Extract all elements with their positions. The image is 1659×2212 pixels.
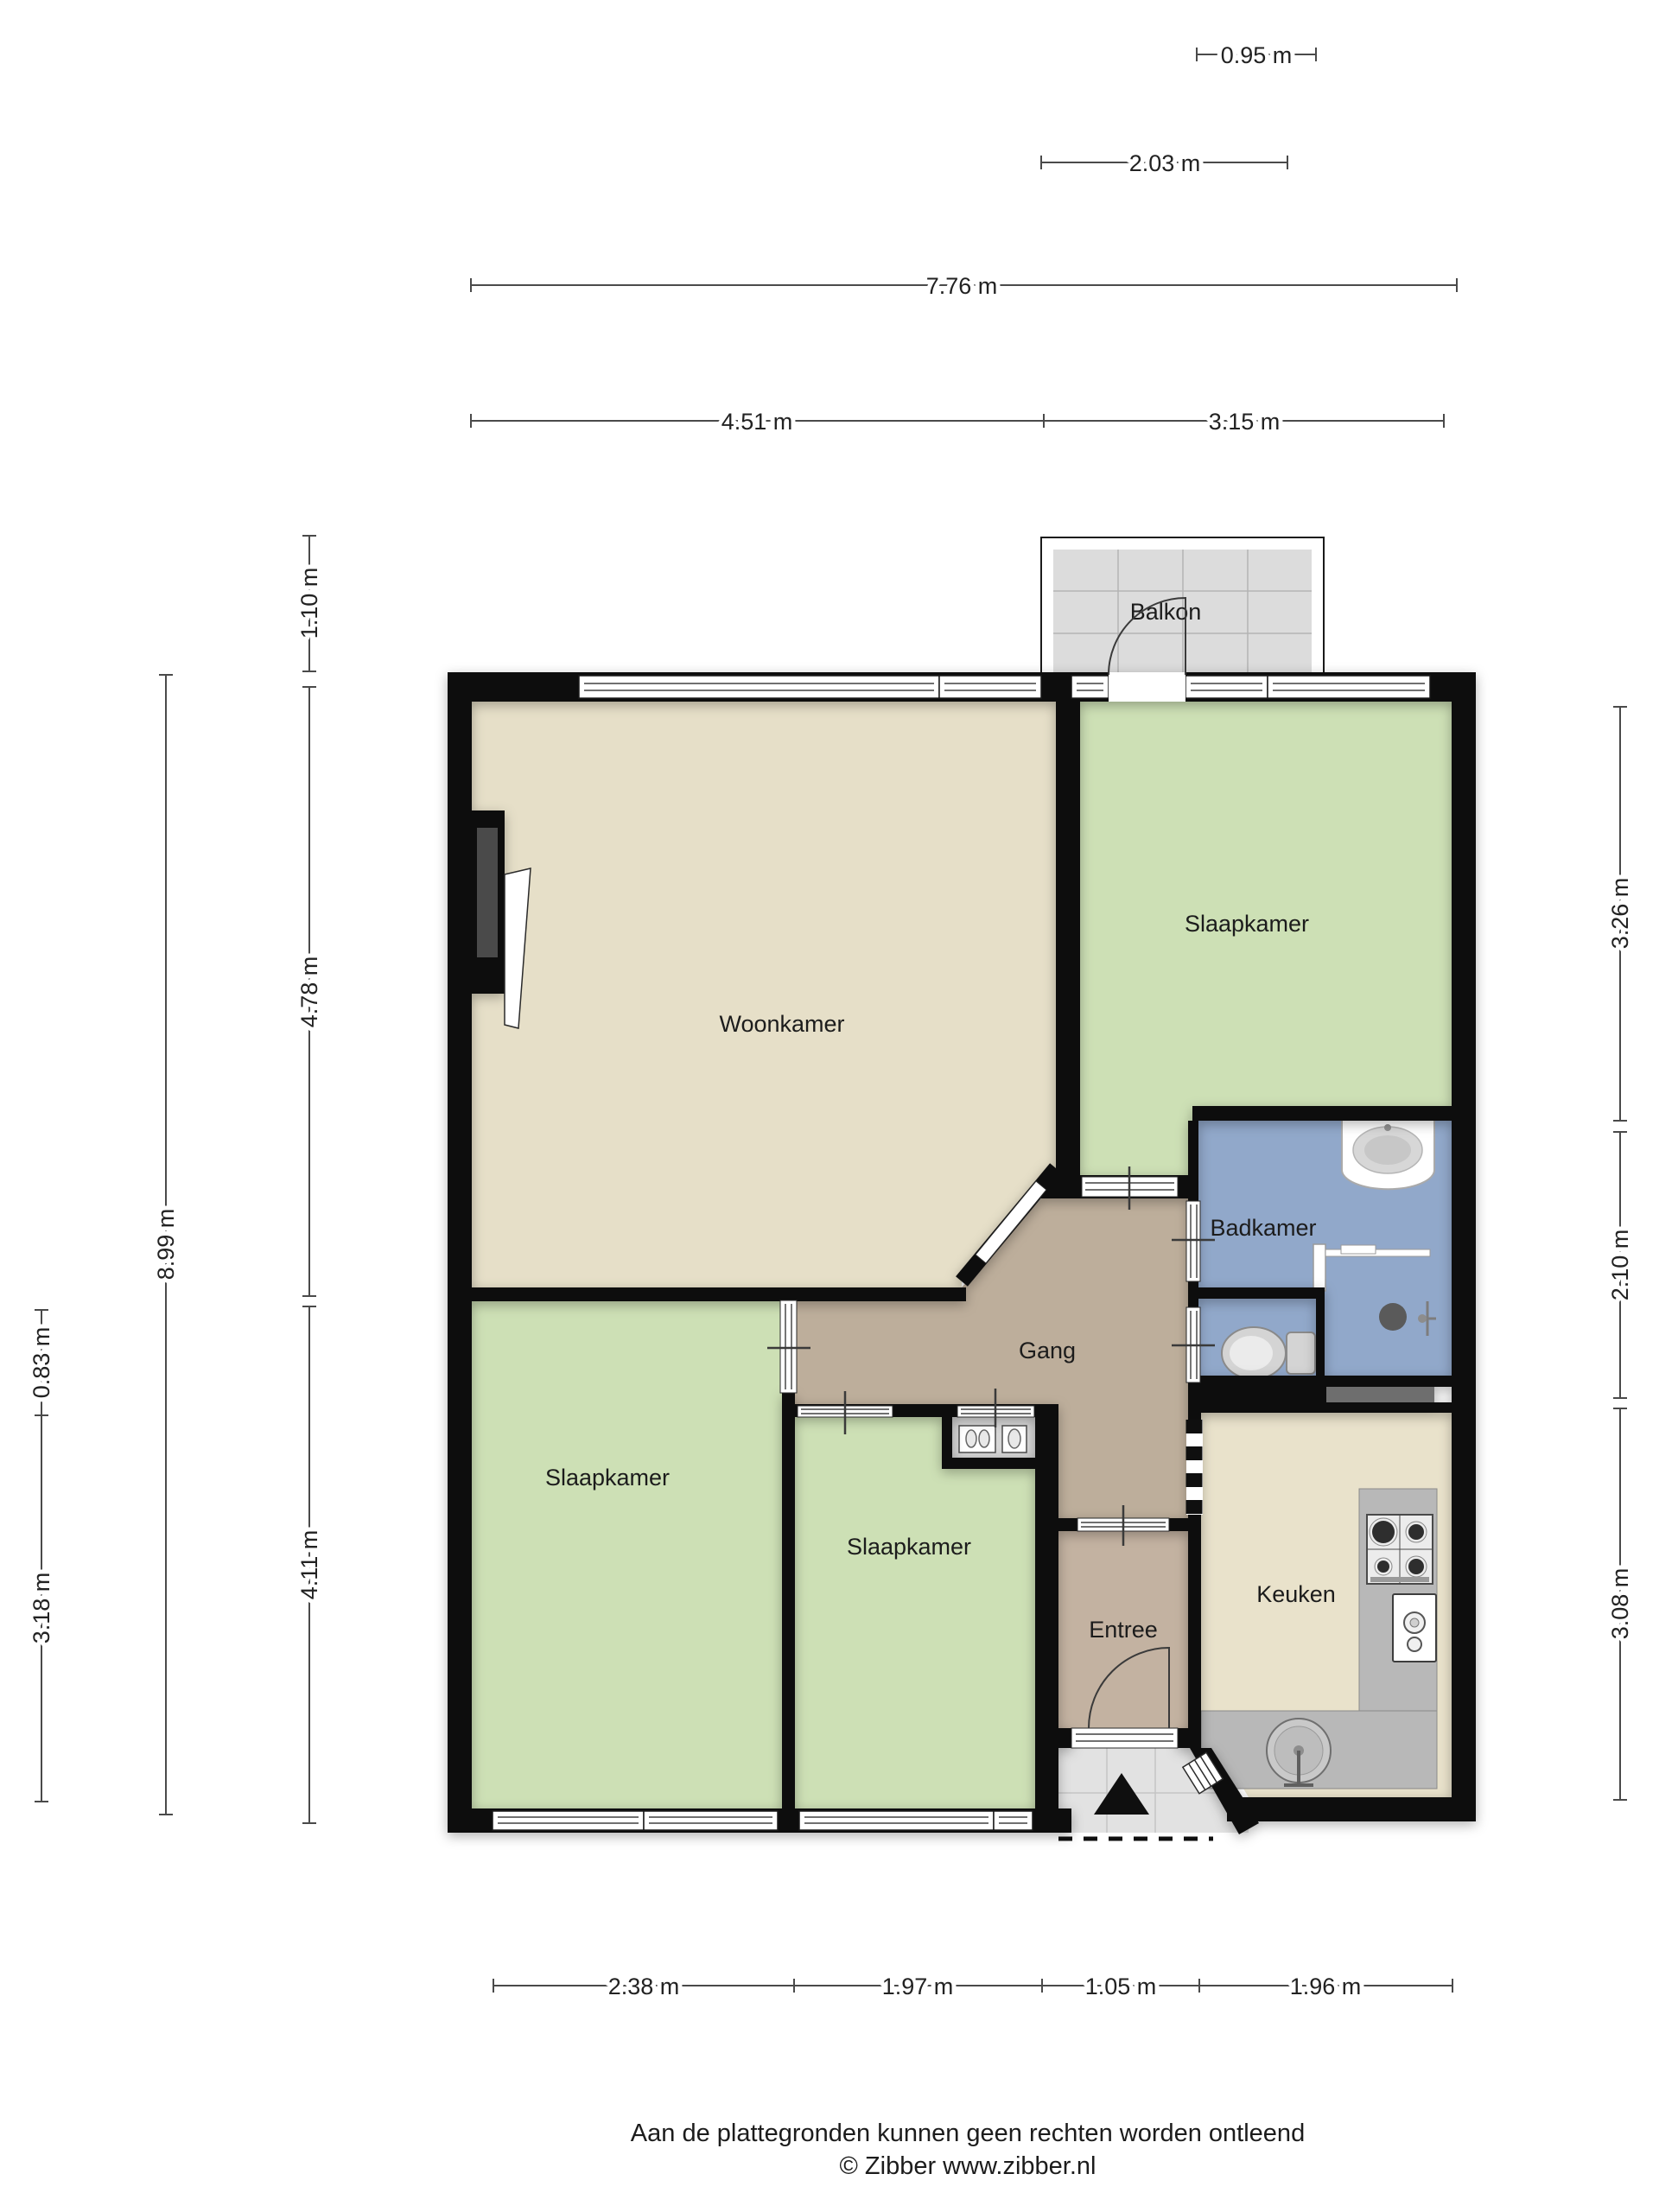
- slaapkamer1-floor: [1080, 702, 1452, 1175]
- dim-left-5: 4.11 m: [296, 1530, 322, 1600]
- room-label-slaapkamer2: Slaapkamer: [545, 1465, 670, 1491]
- dim-bottom-2: 1.05 m: [1085, 1974, 1157, 1999]
- dim-top-0: 0.95 m: [1221, 42, 1293, 68]
- wall-badkamer-top: [1192, 1106, 1452, 1121]
- dim-top-4: 3.15 m: [1209, 409, 1281, 435]
- dim-left-3: 0.83 m: [29, 1327, 54, 1399]
- toilet-icon: [1222, 1327, 1315, 1379]
- meter-closet-icons: [959, 1426, 1027, 1452]
- dim-left-0: 1.10 m: [296, 568, 322, 639]
- wall-wc-shower: [1316, 1299, 1325, 1376]
- ledge-strip: [1326, 1387, 1434, 1402]
- wall-keuken-bottom: [1227, 1797, 1476, 1821]
- dim-top-3: 4.51 m: [721, 409, 793, 435]
- dimensions-bottom: 2.38 m 1.97 m 1.05 m 1.96 m: [493, 1974, 1452, 1999]
- window-woonkamer-2: [939, 676, 1041, 698]
- woonkamer-floor: [472, 702, 1056, 1287]
- dimensions-left: 1.10 m 4.78 m 8.99 m 0.83 m 3.18 m 4.11 …: [29, 536, 322, 1823]
- footer: Aan de plattegronden kunnen geen rechten…: [631, 2120, 1305, 2180]
- wall-wc-keuken: [1192, 1376, 1326, 1413]
- wall-woonkamer-bottom: [448, 1287, 966, 1301]
- chimney-inset: [477, 828, 498, 957]
- dim-left-1: 4.78 m: [296, 957, 322, 1028]
- room-label-badkamer: Badkamer: [1210, 1215, 1316, 1241]
- stove-icon: [1367, 1515, 1433, 1584]
- slaapkamer2-floor: [472, 1301, 782, 1808]
- footer-disclaimer: Aan de plattegronden kunnen geen rechten…: [631, 2120, 1305, 2147]
- dim-right-0: 3.26 m: [1607, 878, 1633, 950]
- window-slaapkamer3-b: [994, 1811, 1033, 1830]
- dim-bottom-1: 1.97 m: [882, 1974, 954, 1999]
- door-badkamer: [1186, 1201, 1200, 1281]
- slaapkamer3-floor: [795, 1417, 1035, 1808]
- wall-meterkast-bottom: [942, 1458, 1035, 1469]
- room-label-gang: Gang: [1019, 1338, 1076, 1363]
- balcony-door-opening: [1109, 672, 1185, 702]
- room-floors: [472, 702, 1452, 1833]
- wall-entree-left: [1035, 1518, 1058, 1833]
- window-woonkamer-1: [579, 676, 939, 698]
- window-balkon-1: [1071, 676, 1109, 698]
- window-slaapkamer2-b: [644, 1811, 778, 1830]
- room-label-slaapkamer1: Slaapkamer: [1185, 911, 1309, 937]
- windows-bottom: [493, 1811, 1033, 1830]
- wall-keuken-top: [1326, 1402, 1452, 1413]
- dim-top-1: 2.03 m: [1129, 150, 1201, 176]
- wall-shower-bottom: [1326, 1376, 1452, 1387]
- washbasin-icon: [1342, 1118, 1434, 1189]
- footer-copyright: © Zibber www.zibber.nl: [840, 2152, 1096, 2180]
- front-door-opening: [1071, 1728, 1178, 1748]
- dim-left-2: 8.99 m: [153, 1209, 179, 1281]
- dim-top-2: 7.76 m: [926, 273, 998, 299]
- shower-drain: [1379, 1303, 1407, 1331]
- wall-left: [448, 672, 472, 1833]
- dim-bottom-0: 2.38 m: [608, 1974, 680, 1999]
- window-slaapkamer3-a: [799, 1811, 994, 1830]
- dimensions-right: 3.26 m 2.10 m 3.08 m: [1607, 707, 1633, 1800]
- wall-right: [1452, 672, 1476, 1821]
- dim-right-1: 2.10 m: [1607, 1230, 1633, 1301]
- window-balkon-2: [1185, 676, 1268, 698]
- room-label-keuken: Keuken: [1256, 1581, 1336, 1607]
- wall-frontdoor-left: [1058, 1728, 1071, 1748]
- wall-woonkamer-slaapkamer: [1056, 702, 1080, 1175]
- boiler-icon: [1393, 1594, 1436, 1662]
- wall-frontdoor-right: [1178, 1728, 1201, 1748]
- shower-door: [1313, 1244, 1325, 1291]
- dim-bottom-3: 1.96 m: [1290, 1974, 1362, 1999]
- dim-left-4: 3.18 m: [29, 1573, 54, 1644]
- room-label-slaapkamer3: Slaapkamer: [847, 1534, 971, 1560]
- wall-slaapkamer2-3: [782, 1404, 795, 1808]
- room-label-woonkamer: Woonkamer: [719, 1011, 844, 1037]
- dim-right-2: 3.08 m: [1607, 1568, 1633, 1640]
- door-slaapkamer2: [780, 1300, 797, 1393]
- floorplan-svg: Balkon: [0, 0, 1659, 2212]
- wall-badkamer-wc: [1192, 1287, 1325, 1299]
- window-slaapkamer1: [1268, 676, 1430, 698]
- floorplan-page: Balkon: [0, 0, 1659, 2212]
- dimensions-top: 0.95 m 2.03 m 7.76 m 4.51 m 3.15 m: [471, 42, 1457, 435]
- room-label-entree: Entree: [1089, 1617, 1158, 1643]
- balcony: Balkon: [1041, 537, 1324, 676]
- window-slaapkamer2-a: [493, 1811, 644, 1830]
